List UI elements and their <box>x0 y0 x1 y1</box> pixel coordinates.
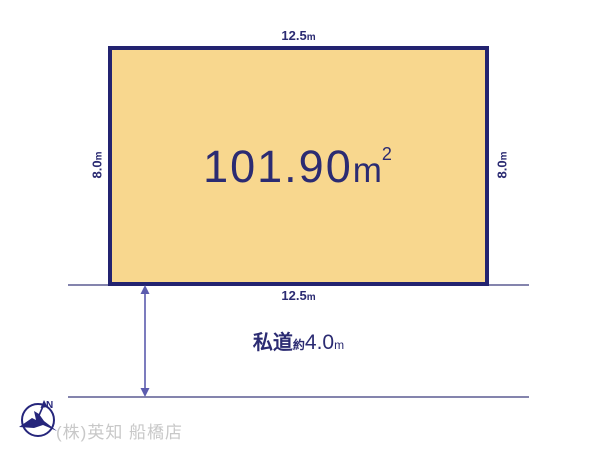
dimension-bottom-value: 12.5 <box>281 288 306 303</box>
dimension-top-unit: m <box>307 32 316 43</box>
dimension-right: 8.0m <box>495 152 510 179</box>
road-label: 私道約4.0m <box>108 330 489 355</box>
dimension-left: 8.0m <box>90 152 105 179</box>
road-approx: 約 <box>293 338 305 352</box>
area-value: 101.90 <box>203 141 353 192</box>
plot-diagram: 101.90m2 12.5m 12.5m 8.0m 8.0m 私道約4.0m N… <box>0 0 600 450</box>
land-parcel: 101.90m2 <box>108 46 489 286</box>
dimension-left-value: 8.0 <box>90 160 105 178</box>
compass-icon: N <box>16 396 60 442</box>
dimension-top: 12.5m <box>108 28 489 43</box>
dimension-bottom: 12.5m <box>108 288 489 303</box>
dimension-right-value: 8.0 <box>495 160 510 178</box>
dimension-top-value: 12.5 <box>281 28 306 43</box>
dimension-right-unit: m <box>499 152 510 161</box>
road-width-unit: m <box>334 338 344 352</box>
dimension-left-unit: m <box>94 152 105 161</box>
area-unit: m <box>353 151 382 190</box>
area-label: 101.90m2 <box>203 144 394 189</box>
dimension-bottom-unit: m <box>307 292 316 303</box>
company-watermark: (株)英知 船橋店 <box>56 418 183 443</box>
compass-north-label: N <box>46 400 53 411</box>
road-width-value: 4.0 <box>305 331 334 354</box>
road-name: 私道 <box>253 332 293 354</box>
area-superscript: 2 <box>382 144 394 164</box>
